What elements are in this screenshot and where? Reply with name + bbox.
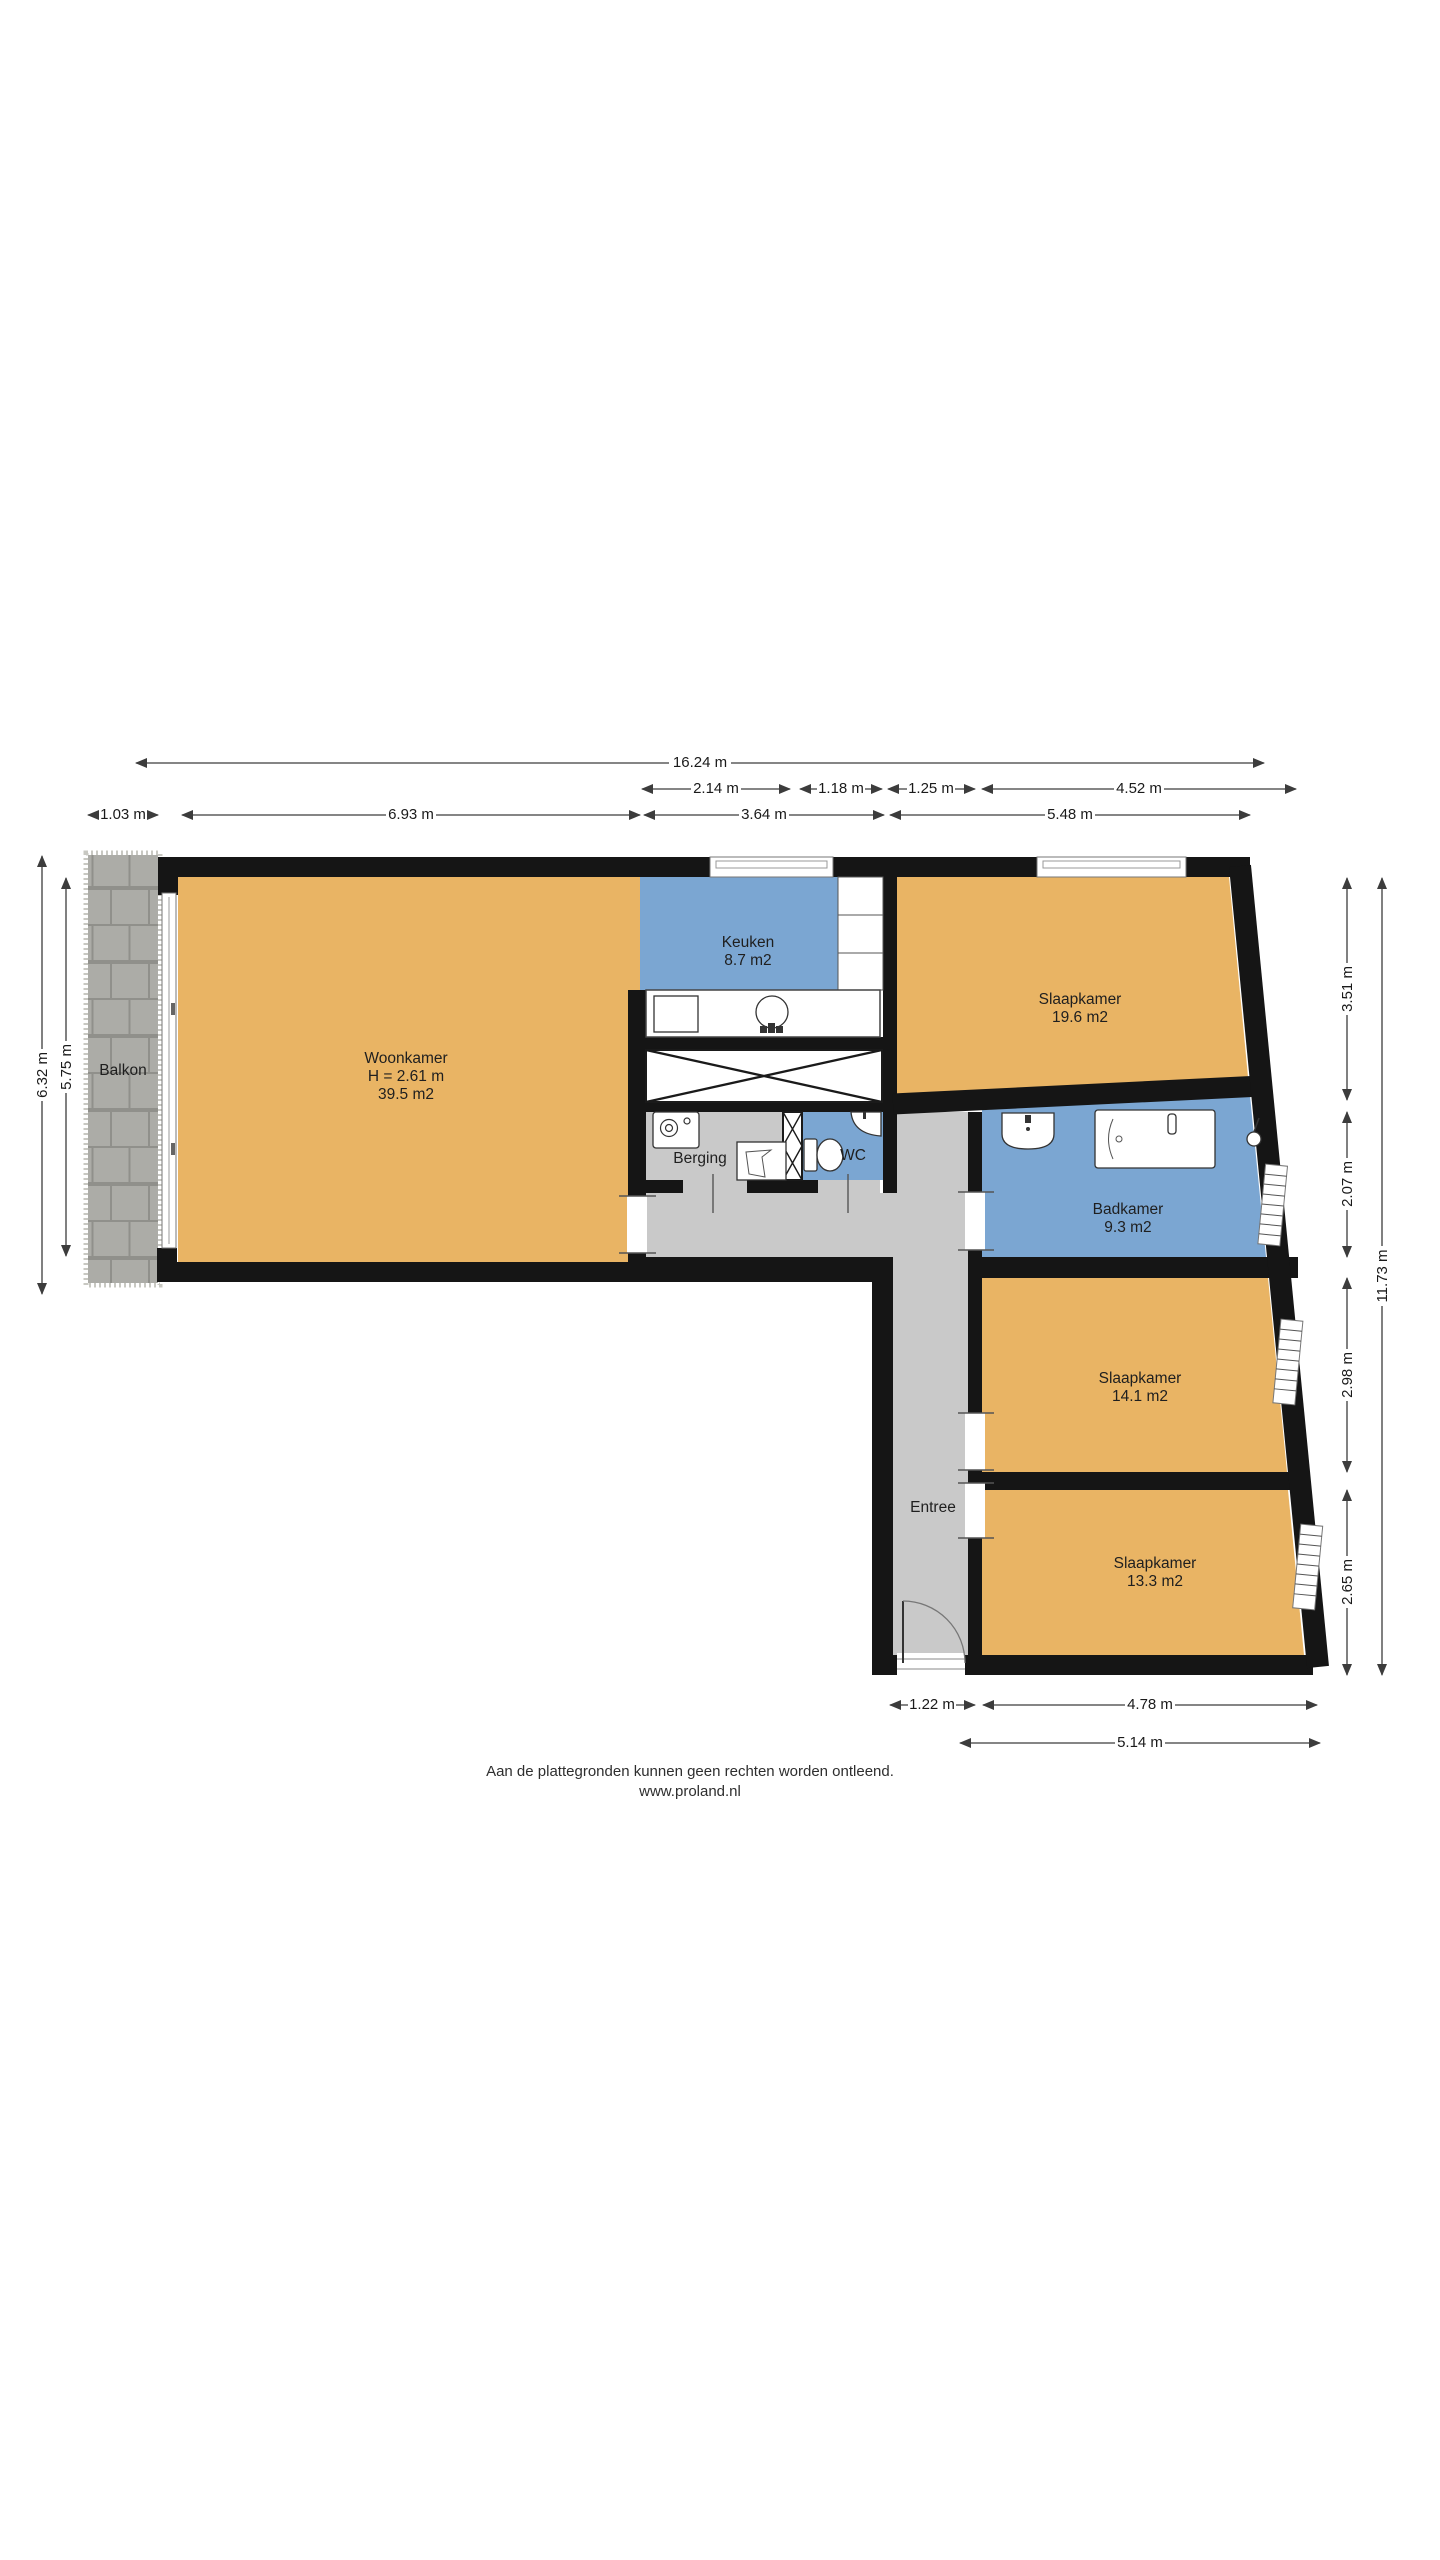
dimensions-left: 6.32 m 5.75 m	[34, 856, 75, 1294]
slaapkamer1-area-label: 19.6 m2	[1052, 1009, 1108, 1026]
dimension: 2.98 m	[1339, 1278, 1356, 1472]
balcony: Balkon	[86, 853, 160, 1285]
svg-text:3.51 m: 3.51 m	[1339, 966, 1356, 1012]
balcony-door-window	[162, 893, 176, 1248]
slaapkamer1-label: Slaapkamer	[1039, 991, 1122, 1008]
svg-text:4.78 m: 4.78 m	[1127, 1696, 1173, 1713]
dimension: 1.25 m	[888, 780, 975, 797]
dimensions-right: 3.51 m 2.07 m 2.98 m 2.65 m	[1339, 878, 1391, 1675]
dimension: 11.73 m	[1374, 878, 1391, 1675]
door-handle-icon	[171, 1143, 175, 1155]
dimension: 6.93 m	[182, 806, 640, 823]
website-text: www.proland.nl	[638, 1783, 741, 1800]
svg-text:1.22 m: 1.22 m	[909, 1696, 955, 1713]
dimension: 5.14 m	[960, 1734, 1320, 1751]
woonkamer-area-label: 39.5 m2	[378, 1086, 434, 1103]
svg-text:6.93 m: 6.93 m	[388, 806, 434, 823]
slaapkamer2-area-label: 14.1 m2	[1112, 1388, 1168, 1405]
svg-text:16.24 m: 16.24 m	[673, 754, 727, 771]
room-slaapkamer-1	[897, 877, 1248, 1094]
dimensions-bottom: 1.22 m 4.78 m 5.14 m	[890, 1696, 1320, 1751]
svg-text:1.25 m: 1.25 m	[908, 780, 954, 797]
slaapkamer2-label: Slaapkamer	[1099, 1370, 1182, 1387]
bathtub-icon	[1095, 1110, 1215, 1168]
dimension: 4.78 m	[983, 1696, 1317, 1713]
dimension: 1.18 m	[800, 780, 882, 797]
balcony-label: Balkon	[99, 1062, 146, 1079]
crossed-void-icon	[646, 1050, 882, 1102]
svg-text:3.64 m: 3.64 m	[741, 806, 787, 823]
badkamer-label: Badkamer	[1093, 1201, 1164, 1218]
slaapkamer3-label: Slaapkamer	[1114, 1555, 1197, 1572]
dimension: 5.75 m	[58, 878, 75, 1256]
svg-text:5.48 m: 5.48 m	[1047, 806, 1093, 823]
washing-machine-icon	[653, 1112, 699, 1148]
door-handle-icon	[171, 1003, 175, 1015]
svg-text:5.14 m: 5.14 m	[1117, 1734, 1163, 1751]
dimension: 3.51 m	[1339, 878, 1356, 1100]
dimension: 6.32 m	[34, 856, 51, 1294]
wc-label: WC	[840, 1147, 866, 1164]
dimensions-top: 16.24 m 2.14 m 1.18 m 1.25 m 4.52 m 1.03…	[88, 754, 1296, 823]
svg-text:2.98 m: 2.98 m	[1339, 1352, 1356, 1398]
keuken-label: Keuken	[722, 934, 775, 951]
cabinet-icon	[838, 877, 883, 990]
svg-text:6.32 m: 6.32 m	[34, 1052, 51, 1098]
toilet-icon	[804, 1139, 843, 1171]
footer: Aan de plattegronden kunnen geen rechten…	[486, 1763, 894, 1800]
svg-text:5.75 m: 5.75 m	[58, 1044, 75, 1090]
bedroom1-window	[1037, 857, 1186, 877]
keuken-area-label: 8.7 m2	[724, 952, 771, 969]
dimension: 16.24 m	[136, 754, 1264, 771]
slaapkamer3-area-label: 13.3 m2	[1127, 1573, 1183, 1590]
dimension: 1.03 m	[88, 806, 158, 823]
floorplan-svg: Balkon	[0, 0, 1440, 2560]
dimension: 1.22 m	[890, 1696, 975, 1713]
svg-text:2.14 m: 2.14 m	[693, 780, 739, 797]
dimension: 2.65 m	[1339, 1490, 1356, 1675]
washbasin-icon	[1002, 1113, 1054, 1149]
room-entree	[893, 1112, 968, 1655]
stove-icon	[654, 996, 698, 1032]
svg-text:2.65 m: 2.65 m	[1339, 1559, 1356, 1605]
woonkamer-label: Woonkamer	[364, 1050, 447, 1067]
svg-text:2.07 m: 2.07 m	[1339, 1161, 1356, 1207]
svg-text:11.73 m: 11.73 m	[1374, 1249, 1391, 1302]
dimension: 3.64 m	[644, 806, 884, 823]
dimension: 5.48 m	[890, 806, 1250, 823]
svg-text:1.18 m: 1.18 m	[818, 780, 864, 797]
svg-text:1.03 m: 1.03 m	[100, 806, 146, 823]
kitchen-window	[710, 857, 833, 877]
entree-label: Entree	[910, 1499, 956, 1516]
floorplan-page: Balkon	[0, 0, 1440, 2560]
badkamer-area-label: 9.3 m2	[1104, 1219, 1151, 1236]
woonkamer-height-label: H = 2.61 m	[368, 1068, 444, 1085]
hallway	[646, 1193, 893, 1257]
dimension: 2.07 m	[1339, 1112, 1356, 1257]
svg-text:4.52 m: 4.52 m	[1116, 780, 1162, 797]
dimension: 2.14 m	[642, 780, 790, 797]
berging-label: Berging	[673, 1150, 726, 1167]
disclaimer-text: Aan de plattegronden kunnen geen rechten…	[486, 1763, 894, 1780]
laundry-tub-icon	[737, 1142, 786, 1180]
dimension: 4.52 m	[982, 780, 1296, 797]
